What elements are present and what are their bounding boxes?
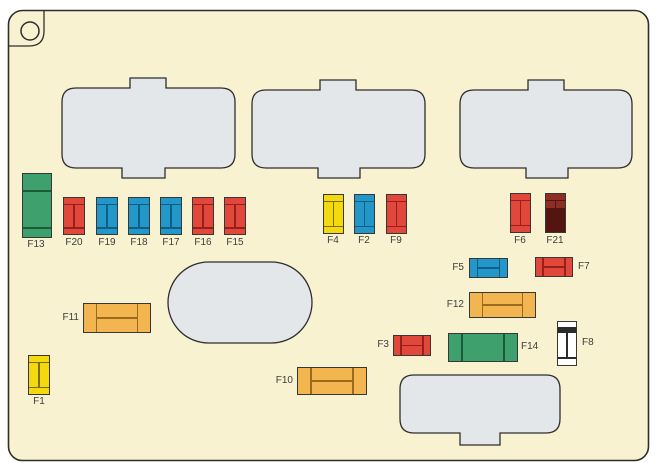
fuse-f15 (224, 197, 246, 235)
fuse-label-f5: F5 (452, 263, 464, 273)
fuse-f13 (22, 173, 52, 238)
fuse-f6 (510, 193, 531, 233)
fuse-label-f16: F16 (194, 238, 211, 248)
screw-hole-icon (21, 22, 39, 40)
fuse-f8 (557, 321, 577, 366)
fuse-f4 (323, 194, 344, 234)
fuse-label-f8: F8 (582, 338, 594, 348)
relay-slot-middle (252, 80, 425, 178)
fuse-label-f21: F21 (546, 236, 563, 246)
fuse-label-f1: F1 (33, 397, 45, 407)
fuse-f10 (297, 367, 367, 395)
fuse-f18 (128, 197, 150, 235)
relay-slot-left (62, 78, 235, 178)
fuse-label-f15: F15 (226, 238, 243, 248)
fuse-f16 (192, 197, 214, 235)
fuse-f2 (354, 194, 375, 234)
fuse-f7 (535, 257, 573, 277)
fuse-f11 (83, 303, 151, 333)
fuse-label-f6: F6 (514, 236, 526, 246)
fuse-f19 (96, 197, 118, 235)
fuse-label-f17: F17 (162, 238, 179, 248)
fuse-label-f14: F14 (521, 342, 538, 352)
fuse-label-f9: F9 (390, 236, 402, 246)
fuse-f17 (160, 197, 182, 235)
oval-slot (168, 262, 312, 343)
fuse-label-f13: F13 (27, 240, 44, 250)
fuse-label-f11: F11 (63, 313, 80, 323)
fuse-label-f19: F19 (98, 238, 115, 248)
fuse-f12 (469, 292, 536, 318)
fuse-f1 (28, 355, 50, 395)
fuse-f21 (545, 193, 566, 233)
fuse-box-diagram: F13 F20 F19 F18 F17 F16 F15 F4 F2 F9 F6 … (0, 0, 657, 470)
relay-slot-right (460, 80, 632, 178)
fuse-label-f3: F3 (377, 340, 389, 350)
fuse-label-f12: F12 (447, 300, 464, 310)
fuse-f5 (469, 258, 508, 278)
fuse-f20 (63, 197, 85, 235)
fuse-f14 (448, 333, 518, 362)
fuse-label-f2: F2 (358, 236, 370, 246)
fuse-label-f10: F10 (276, 376, 293, 386)
fuse-label-f20: F20 (65, 238, 82, 248)
fuse-label-f18: F18 (130, 238, 147, 248)
fuse-label-f7: F7 (578, 262, 590, 272)
fuse-label-f4: F4 (327, 236, 339, 246)
fuse-f3 (393, 335, 431, 356)
fuse-f9 (386, 194, 407, 234)
